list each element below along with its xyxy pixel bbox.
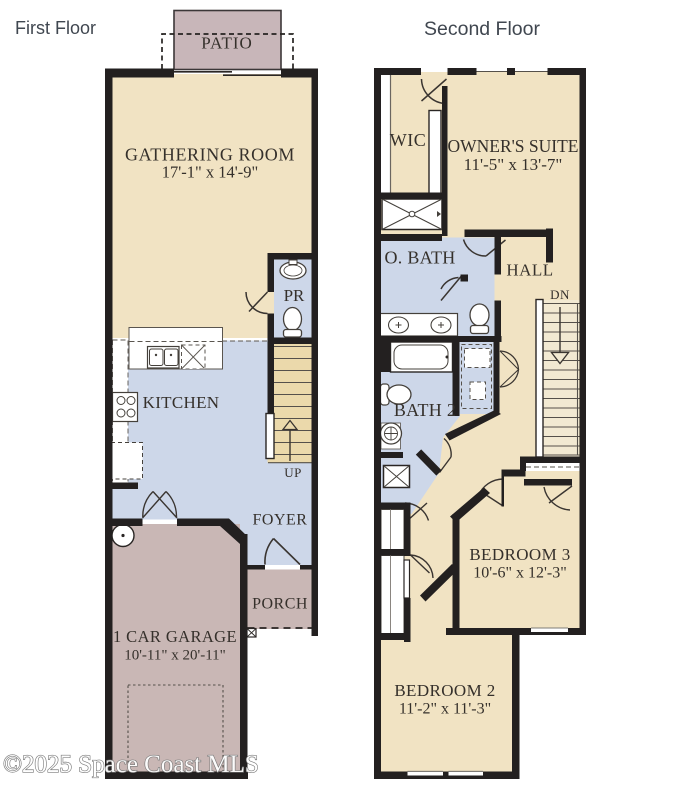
svg-text:11'-5" x 13'-7": 11'-5" x 13'-7"	[464, 155, 563, 174]
svg-text:1 CAR GARAGE: 1 CAR GARAGE	[113, 627, 237, 646]
svg-text:11'-2" x 11'-3": 11'-2" x 11'-3"	[399, 701, 491, 718]
svg-text:DN: DN	[550, 287, 570, 302]
svg-text:©2025 Space Coast MLS: ©2025 Space Coast MLS	[3, 751, 259, 778]
svg-text:PATIO: PATIO	[201, 34, 253, 53]
svg-text:GATHERING ROOM: GATHERING ROOM	[125, 145, 295, 165]
svg-text:BEDROOM 2: BEDROOM 2	[394, 681, 495, 700]
svg-text:First Floor: First Floor	[15, 18, 96, 38]
svg-text:BATH 2: BATH 2	[394, 400, 456, 420]
svg-text:10'-6" x 12'-3": 10'-6" x 12'-3"	[473, 565, 566, 582]
svg-text:BEDROOM 3: BEDROOM 3	[469, 545, 570, 564]
svg-text:FOYER: FOYER	[253, 512, 308, 529]
svg-text:PR: PR	[284, 286, 305, 305]
svg-text:PORCH: PORCH	[252, 596, 308, 613]
svg-text:10'-11" x 20'-11": 10'-11" x 20'-11"	[124, 648, 226, 664]
svg-text:UP: UP	[284, 465, 302, 480]
svg-text:HALL: HALL	[506, 261, 553, 280]
svg-text:OWNER'S SUITE: OWNER'S SUITE	[448, 136, 579, 156]
svg-text:17'-1" x 14'-9": 17'-1" x 14'-9"	[162, 163, 258, 182]
svg-text:O. BATH: O. BATH	[384, 248, 455, 268]
svg-text:KITCHEN: KITCHEN	[143, 393, 220, 412]
svg-text:WIC: WIC	[390, 130, 427, 150]
svg-text:Second Floor: Second Floor	[424, 18, 540, 40]
